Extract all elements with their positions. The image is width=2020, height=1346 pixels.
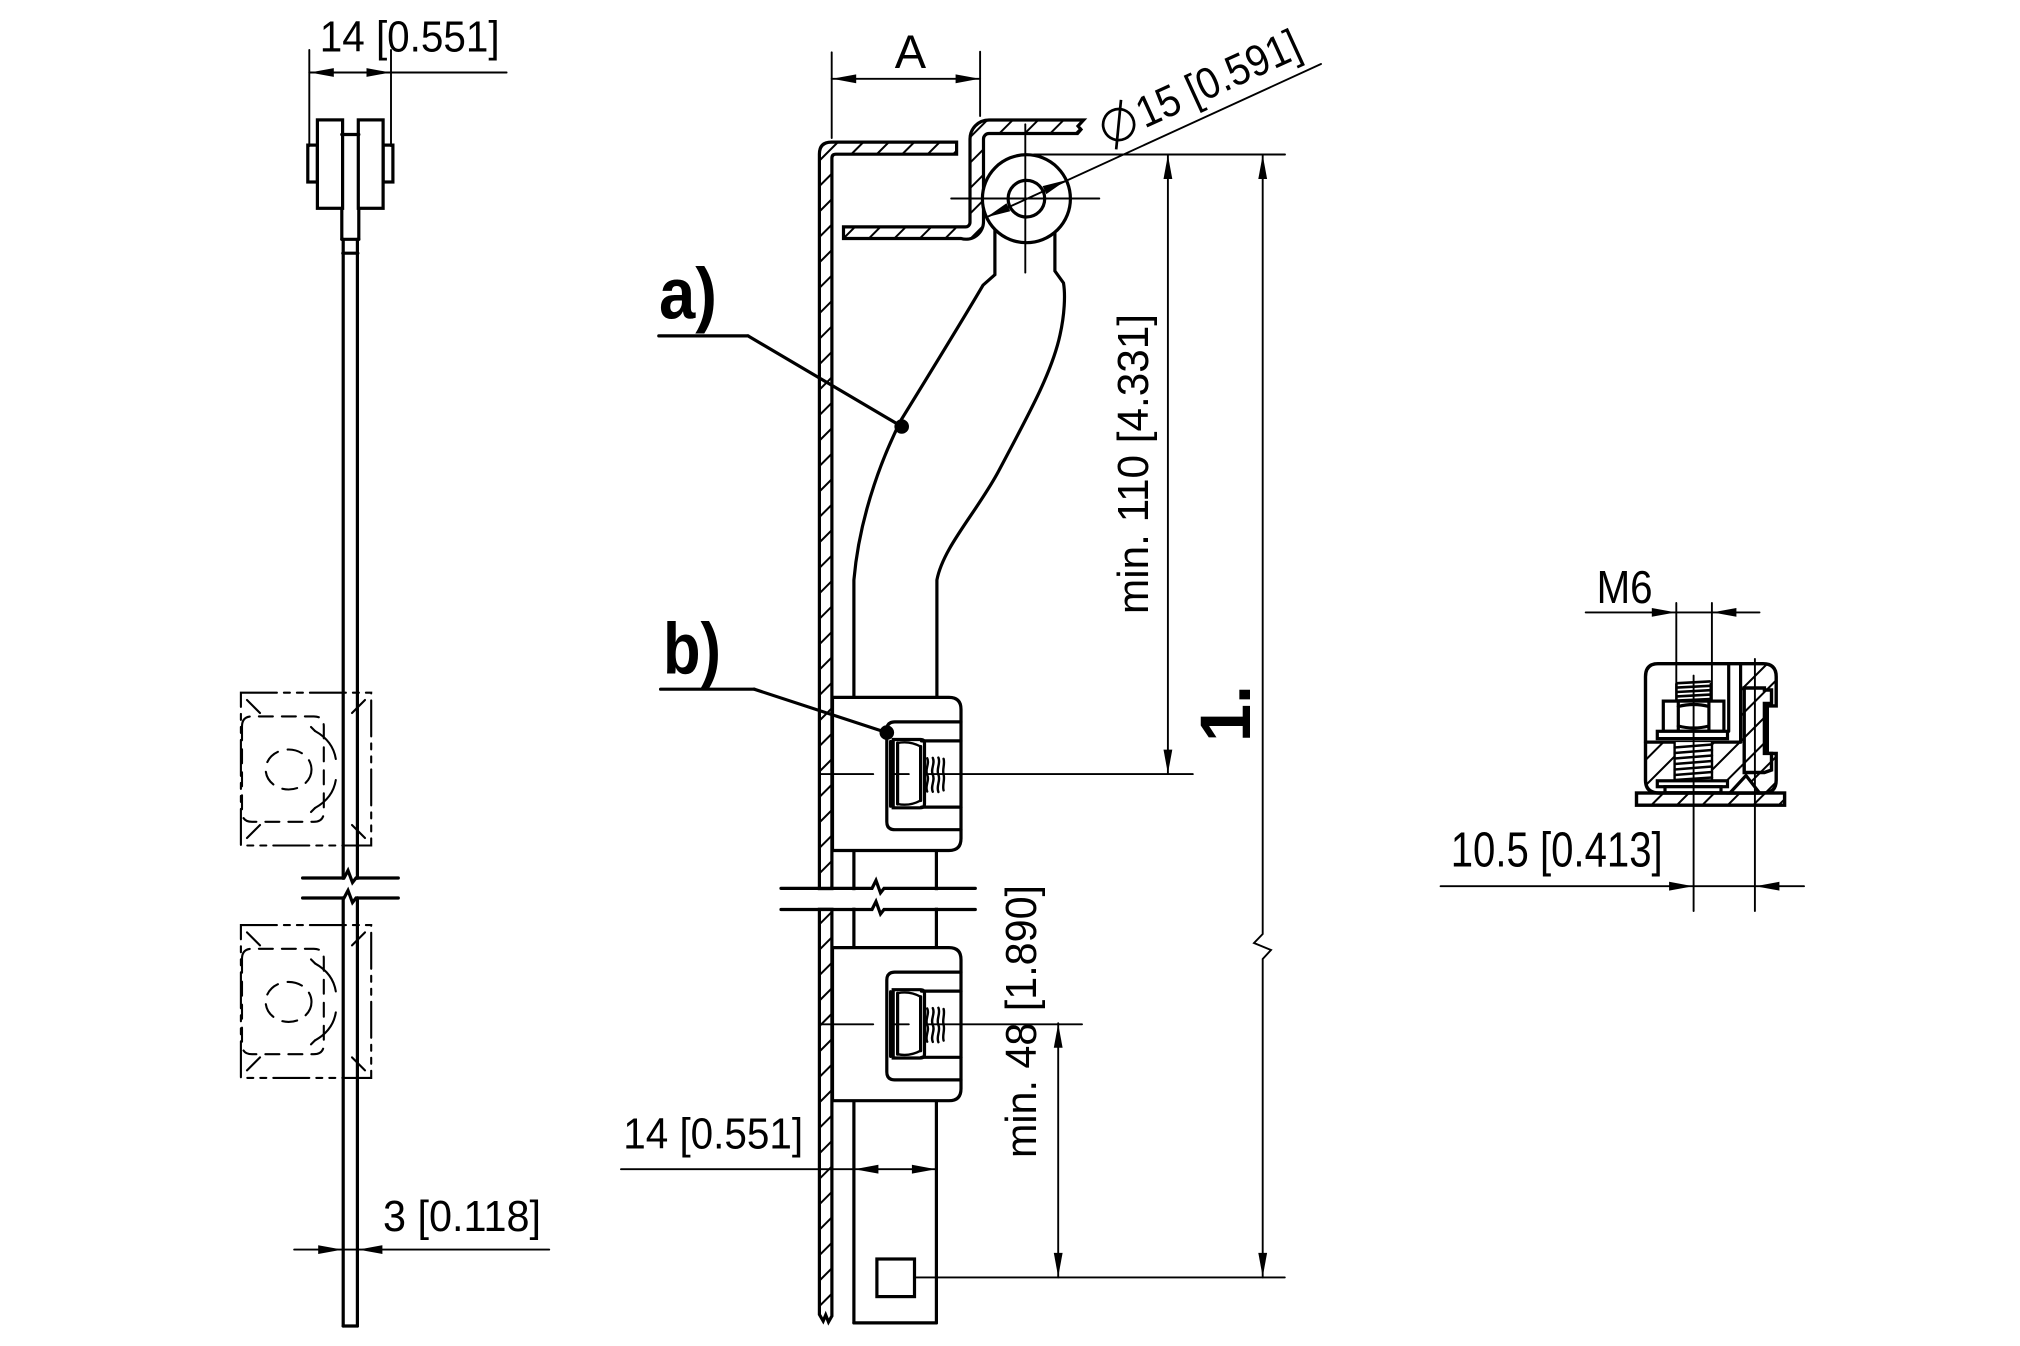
svg-text:min. 48 [1.890]: min. 48 [1.890] xyxy=(997,885,1046,1158)
svg-text:14 [0.551]: 14 [0.551] xyxy=(623,1110,803,1159)
svg-text:M6: M6 xyxy=(1597,561,1653,613)
svg-text:1.: 1. xyxy=(1187,685,1266,742)
svg-text:3 [0.118]: 3 [0.118] xyxy=(383,1192,541,1241)
svg-text:a): a) xyxy=(659,254,717,334)
svg-text:A: A xyxy=(895,25,927,78)
svg-text:14 [0.551]: 14 [0.551] xyxy=(320,13,500,62)
svg-text:b): b) xyxy=(663,610,721,690)
svg-text:10.5 [0.413]: 10.5 [0.413] xyxy=(1451,824,1663,878)
svg-text:min. 110 [4.331]: min. 110 [4.331] xyxy=(1109,314,1158,614)
